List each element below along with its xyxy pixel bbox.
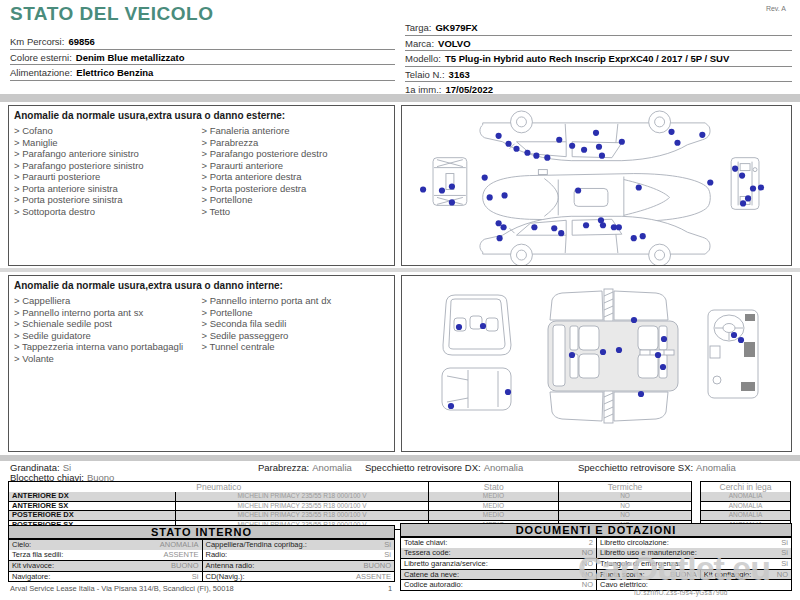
status-label: Parabrezza: bbox=[258, 462, 309, 473]
anomaly-item: Tunnel centrale bbox=[202, 341, 390, 353]
exterior-damage-diagram-panel bbox=[401, 105, 792, 266]
damage-marker bbox=[619, 139, 625, 145]
dashboard-outline bbox=[708, 310, 758, 398]
status-label: Catene da neve: bbox=[404, 570, 459, 579]
damage-marker bbox=[758, 184, 764, 190]
damage-marker bbox=[581, 147, 587, 153]
damage-marker bbox=[497, 235, 503, 241]
status-label: Specchietto retrovisore SX: bbox=[578, 462, 693, 473]
damage-marker bbox=[531, 224, 537, 230]
damage-marker bbox=[482, 174, 488, 180]
status-cell: Antenna radio:BUONO bbox=[202, 561, 395, 571]
field-label: Marca: bbox=[405, 38, 434, 49]
field-label: Alimentazione: bbox=[10, 67, 72, 78]
status-value: Si bbox=[192, 572, 199, 581]
anomaly-item: Paraurti posteriore bbox=[14, 171, 202, 183]
status-value: NO bbox=[777, 570, 788, 579]
damage-marker bbox=[551, 225, 557, 231]
damage-marker bbox=[599, 153, 605, 159]
alloy-wheel-row: ANOMALIA bbox=[701, 492, 790, 501]
car-front-outline bbox=[433, 158, 467, 206]
damage-marker bbox=[496, 133, 502, 139]
damage-marker bbox=[745, 195, 751, 201]
status-value: BUONO bbox=[171, 561, 199, 570]
status-row: Terza fila sedili:ASSENTERadio:Si bbox=[9, 550, 394, 561]
damage-marker bbox=[674, 140, 680, 146]
external-anomalies-title: Anomalie da normale usura,extra usura o … bbox=[9, 106, 394, 123]
field-value: Denim Blue metallizzato bbox=[76, 52, 185, 63]
page-number: 1 bbox=[388, 584, 392, 593]
vehicle-summary-right: Targa:GK979FXMarca:VOLVOModello:T5 Plug-… bbox=[405, 20, 792, 98]
interior-damage-diagram-panel bbox=[401, 275, 792, 452]
status-label: Cielo: bbox=[12, 540, 31, 549]
damage-marker bbox=[600, 349, 606, 355]
damage-marker bbox=[505, 141, 511, 147]
anomaly-item: Sottoporta destro bbox=[14, 206, 202, 218]
damage-marker bbox=[699, 132, 705, 138]
status-cell: Libretto circolazione:Si bbox=[596, 538, 791, 548]
caroutlet-watermark: CarOutlet.eu bbox=[578, 549, 770, 588]
page-title: STATO DEL VEICOLO bbox=[10, 3, 213, 25]
anomaly-item: Paraurti anteriore bbox=[202, 160, 390, 172]
status-cell: Cielo:ANOMALIA bbox=[9, 540, 202, 550]
vehicle-report-page: STATO DEL VEICOLO Rev. A Km Percorsi:698… bbox=[0, 0, 800, 600]
document-id: ID:szfIhO.Zss-t9s4-yGsa79ud bbox=[634, 589, 728, 596]
damage-marker bbox=[707, 179, 713, 185]
field-row: Targa:GK979FX bbox=[405, 20, 792, 36]
damage-marker bbox=[501, 192, 507, 198]
status-label: Kit vivavoce: bbox=[12, 561, 54, 570]
damage-marker bbox=[640, 233, 646, 239]
damage-marker bbox=[456, 324, 462, 330]
internal-anomalies-title: Anomalie da normale usura,extra usura o … bbox=[9, 276, 394, 293]
tire-row: ANTERIORE SXMICHELIN PRIMACY 235/55 R18 … bbox=[9, 501, 691, 511]
field-value: 69856 bbox=[68, 36, 94, 47]
anomaly-item: Seconda fila sedili bbox=[202, 318, 390, 330]
status-label: Specchietto retrovisore DX: bbox=[365, 462, 481, 473]
alloy-wheel-row: ANOMALIA bbox=[701, 501, 790, 511]
status-cell: Catene da neve:NO bbox=[401, 570, 596, 580]
separator-bar bbox=[0, 94, 800, 102]
internal-anomalies-panel: Anomalie da normale usura,extra usura o … bbox=[8, 275, 395, 452]
damage-marker bbox=[569, 143, 575, 149]
status-row: Cielo:ANOMALIACappelliera/Tendina coprib… bbox=[9, 539, 394, 550]
field-label: Telaio N.: bbox=[405, 69, 445, 80]
field-value: VOLVO bbox=[438, 38, 471, 49]
tire-winter-flag: NO bbox=[559, 502, 691, 511]
external-anomalies-col1: CofanoManiglieParafango anteriore sinist… bbox=[14, 125, 202, 217]
damage-marker bbox=[668, 129, 674, 135]
tire-header-cerchi: Cerchi in lega bbox=[701, 482, 790, 492]
status-cell: Totale chiavi:2 bbox=[401, 538, 596, 548]
status-value: BUONO bbox=[363, 561, 391, 570]
exterior-car-diagram bbox=[402, 106, 791, 265]
status-value: Si bbox=[781, 559, 788, 568]
field-row: Km Percorsi:69856 bbox=[10, 34, 395, 50]
tire-position: POSTERIORE DX bbox=[9, 511, 176, 520]
anomaly-item: Porta posteriore destra bbox=[202, 183, 390, 195]
status-row: Totale chiavi:2Libretto circolazione:Si bbox=[401, 537, 791, 548]
status-cell: Codice autoradio:NO bbox=[401, 580, 596, 590]
status-value: Anomalia bbox=[312, 462, 352, 473]
tire-row: POSTERIORE DXMICHELIN PRIMACY 235/55 R18… bbox=[9, 510, 691, 520]
anomaly-item: Fanaleria anteriore bbox=[202, 125, 390, 137]
damage-marker bbox=[480, 323, 486, 329]
anomaly-item: Volante bbox=[14, 353, 202, 365]
alloy-wheels-header: Cerchi in lega bbox=[701, 482, 790, 492]
damage-marker bbox=[524, 150, 530, 156]
documents-title: DOCUMENTI E DOTAZIONI bbox=[401, 524, 791, 537]
field-row: Marca:VOLVO bbox=[405, 36, 792, 52]
damage-marker bbox=[556, 137, 562, 143]
field-value: T5 Plug-in Hybrid auto Rech Inscrip Expr… bbox=[445, 53, 729, 64]
status-value: Si bbox=[384, 550, 391, 559]
anomaly-item: Porta anteriore destra bbox=[202, 171, 390, 183]
anomaly-item: Tappezzeria interna vano portabagagli bbox=[14, 341, 202, 353]
status-value: Anomalia bbox=[696, 462, 736, 473]
internal-anomalies-col1: CappellieraPannello interno porta ant sx… bbox=[14, 295, 202, 364]
anomaly-item: Cofano bbox=[14, 125, 202, 137]
field-row: Telaio N.:3163 bbox=[405, 67, 792, 83]
status-label: Navigatore: bbox=[12, 572, 50, 581]
alloy-wheel-status: ANOMALIA bbox=[701, 502, 790, 511]
damage-marker bbox=[533, 153, 539, 159]
anomaly-item: Porta posteriore sinistra bbox=[14, 194, 202, 206]
anomaly-item: Parafango anteriore sinistro bbox=[14, 148, 202, 160]
damage-marker bbox=[596, 144, 602, 150]
damage-marker bbox=[732, 166, 738, 172]
tire-condition: MEDIO bbox=[429, 492, 559, 501]
external-anomalies-col2: Fanaleria anterioreParabrezzaParafango p… bbox=[202, 125, 390, 217]
revision-label: Rev. A bbox=[766, 5, 786, 12]
damage-marker bbox=[558, 230, 564, 236]
alloy-wheel-status: ANOMALIA bbox=[701, 492, 790, 501]
field-value: Elettrico Benzina bbox=[76, 67, 153, 78]
anomaly-item: Parabrezza bbox=[202, 137, 390, 149]
damage-marker bbox=[593, 130, 599, 136]
tire-header-termiche: Termiche bbox=[559, 482, 691, 492]
status-cell: CD(Navig.):ASSENTE bbox=[202, 572, 395, 582]
rear-seat-outline bbox=[443, 295, 511, 355]
damage-marker bbox=[738, 337, 744, 343]
damage-marker bbox=[740, 200, 746, 206]
field-row: Alimentazione:Elettrico Benzina bbox=[10, 65, 395, 81]
status-label: Antenna radio: bbox=[206, 561, 255, 570]
separator-bar bbox=[0, 268, 800, 272]
damage-marker bbox=[655, 352, 661, 358]
anomaly-item: Cappelliera bbox=[14, 295, 202, 307]
tire-header-pneumatico: Pneumatico bbox=[9, 482, 429, 492]
field-row: Colore esterni:Denim Blue metallizzato bbox=[10, 50, 395, 66]
damage-marker bbox=[513, 146, 519, 152]
damage-marker bbox=[616, 224, 622, 230]
damage-marker bbox=[449, 199, 455, 205]
status-label: Tessera code: bbox=[404, 548, 451, 557]
anomaly-item: Portellone bbox=[202, 307, 390, 319]
anomaly-item: Parafango posteriore sinistro bbox=[14, 160, 202, 172]
field-row: Modello:T5 Plug-in Hybrid auto Rech Insc… bbox=[405, 51, 792, 67]
status-parabrezza: Parabrezza:Anomalia bbox=[258, 462, 352, 473]
status-cell: Terza fila sedili:ASSENTE bbox=[9, 550, 202, 561]
field-value: 3163 bbox=[449, 69, 470, 80]
status-value: Anomalia bbox=[484, 462, 524, 473]
anomaly-item: Tetto bbox=[202, 206, 390, 218]
status-value: ASSENTE bbox=[356, 572, 391, 581]
status-value: Si bbox=[384, 540, 391, 549]
damage-marker bbox=[449, 183, 455, 189]
tire-position: ANTERIORE SX bbox=[9, 502, 176, 511]
status-cell: Cappelliera/Tendina copribag.:Si bbox=[202, 540, 395, 550]
field-label: Modello: bbox=[405, 53, 441, 64]
interior-car-diagram bbox=[402, 276, 791, 451]
anomaly-item: Maniglie bbox=[14, 137, 202, 149]
damage-marker bbox=[544, 155, 550, 161]
tire-position: ANTERIORE DX bbox=[9, 492, 176, 501]
anomaly-item: Schienale sedile post bbox=[14, 318, 202, 330]
status-value: ASSENTE bbox=[163, 550, 198, 559]
internal-anomalies-col2: Pannello interno porta ant dxPortelloneS… bbox=[202, 295, 390, 364]
status-specchietto-dx: Specchietto retrovisore DX:Anomalia bbox=[365, 462, 523, 473]
status-label: Libretto garanzia/service: bbox=[404, 559, 488, 568]
tire-description: MICHELIN PRIMACY 235/55 R18 000/100 V bbox=[176, 492, 429, 501]
damage-marker bbox=[439, 187, 445, 193]
alloy-wheel-status: ANOMALIA bbox=[701, 511, 790, 520]
field-label: Km Percorsi: bbox=[10, 36, 64, 47]
tire-description: MICHELIN PRIMACY 235/55 R18 000/100 V bbox=[176, 502, 429, 511]
alloy-wheel-row: ANOMALIA bbox=[701, 510, 790, 520]
damage-marker bbox=[569, 352, 575, 358]
status-value: 2 bbox=[589, 538, 593, 547]
damage-marker bbox=[660, 364, 666, 370]
status-row: Kit vivavoce:BUONOAntenna radio:BUONO bbox=[9, 560, 394, 571]
interior-status-title: STATO INTERNO bbox=[9, 526, 394, 539]
status-label: Totale chiavi: bbox=[404, 538, 447, 547]
anomaly-item: Pannello interno porta ant dx bbox=[202, 295, 390, 307]
status-value: Si bbox=[781, 548, 788, 557]
status-row: Navigatore:SiCD(Navig.):ASSENTE bbox=[9, 571, 394, 582]
tire-row: ANTERIORE DXMICHELIN PRIMACY 235/55 R18 … bbox=[9, 492, 691, 501]
damage-marker bbox=[600, 222, 606, 228]
tire-winter-flag: NO bbox=[559, 511, 691, 520]
tire-condition: MEDIO bbox=[429, 502, 559, 511]
field-label: Targa: bbox=[405, 22, 431, 33]
tire-description: MICHELIN PRIMACY 235/55 R18 000/100 V bbox=[176, 511, 429, 520]
damage-marker bbox=[505, 389, 511, 395]
damage-marker bbox=[501, 224, 507, 230]
anomaly-item: Portellone bbox=[202, 194, 390, 206]
damage-marker bbox=[731, 332, 737, 338]
status-label: Terza fila sedili: bbox=[12, 550, 63, 559]
damage-marker bbox=[638, 391, 644, 397]
damage-marker bbox=[583, 222, 589, 228]
status-cell: Kit vivavoce:BUONO bbox=[9, 561, 202, 571]
external-anomalies-panel: Anomalie da normale usura,extra usura o … bbox=[8, 105, 395, 266]
status-label: CD(Navig.): bbox=[206, 572, 245, 581]
car-side-bottom-outline bbox=[480, 216, 710, 265]
anomaly-item: Parafango posteriore destro bbox=[202, 148, 390, 160]
damage-marker bbox=[616, 347, 622, 353]
tire-winter-flag: NO bbox=[559, 492, 691, 501]
tire-condition: MEDIO bbox=[429, 511, 559, 520]
status-cell: Tessera code:NO bbox=[401, 548, 596, 559]
damage-marker bbox=[631, 235, 637, 241]
field-value: GK979FX bbox=[435, 22, 477, 33]
separator-bar bbox=[0, 455, 800, 461]
field-label: Colore esterni: bbox=[10, 52, 72, 63]
interior-status-table: STATO INTERNO Cielo:ANOMALIACappelliera/… bbox=[8, 525, 395, 582]
damage-marker bbox=[448, 403, 454, 409]
anomaly-item: Sedile passeggero bbox=[202, 330, 390, 342]
status-cell: Navigatore:Si bbox=[9, 572, 202, 582]
status-label: Radio: bbox=[206, 550, 228, 559]
damage-marker bbox=[631, 317, 637, 323]
status-value: Si bbox=[781, 538, 788, 547]
status-label: Libretto circolazione: bbox=[600, 538, 669, 547]
damage-marker bbox=[487, 194, 493, 200]
damage-marker bbox=[661, 336, 667, 342]
damage-marker bbox=[636, 184, 642, 190]
anomaly-item: Sedile guidatore bbox=[14, 330, 202, 342]
anomaly-item: Pannello interno porta ant sx bbox=[14, 307, 202, 319]
footer-address: Arval Service Lease Italia - Via Pisana … bbox=[10, 584, 234, 593]
vehicle-summary-left: Km Percorsi:69856Colore esterni:Denim Bl… bbox=[10, 34, 395, 81]
damage-marker bbox=[750, 185, 756, 191]
damage-marker bbox=[739, 172, 745, 178]
car-side-top-outline bbox=[480, 111, 710, 161]
status-cell: Libretto garanzia/service:NO bbox=[401, 559, 596, 569]
status-label: Codice autoradio: bbox=[404, 580, 463, 589]
damage-marker bbox=[575, 187, 581, 193]
status-value: ANOMALIA bbox=[160, 540, 199, 549]
damage-marker bbox=[496, 220, 502, 226]
tire-table-header: Pneumatico Stato Termiche bbox=[9, 482, 691, 492]
anomaly-item: Porta anteriore sinistra bbox=[14, 183, 202, 195]
status-cell: Radio:Si bbox=[202, 550, 395, 561]
damage-marker bbox=[420, 186, 426, 192]
status-label: Cappelliera/Tendina copribag.: bbox=[206, 540, 307, 549]
tire-header-stato: Stato bbox=[429, 482, 559, 492]
status-specchietto-sx: Specchietto retrovisore SX:Anomalia bbox=[578, 462, 736, 473]
